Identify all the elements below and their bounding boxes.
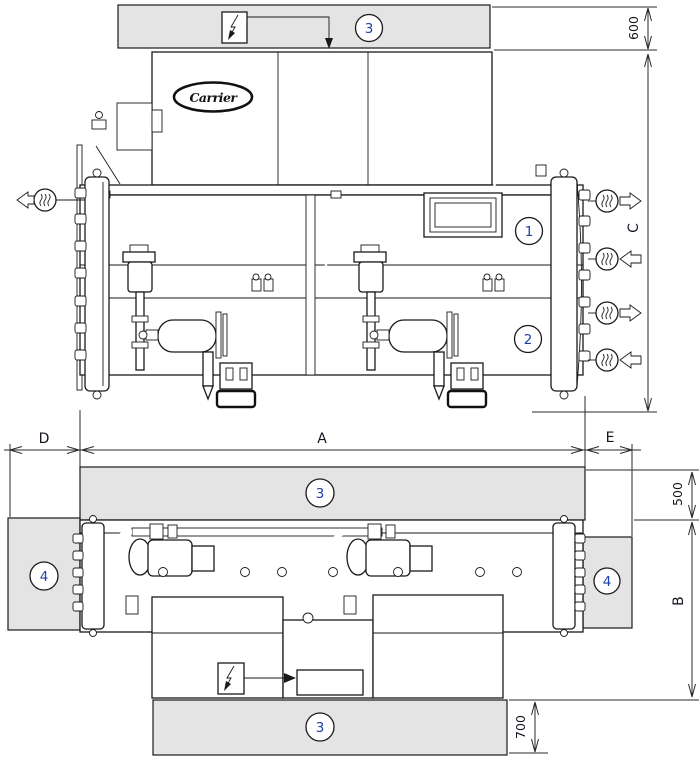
water-connection-right-1-out xyxy=(588,190,641,212)
dim-A-label: A xyxy=(317,431,327,447)
unit-top-panels xyxy=(152,52,492,185)
tube-sheet-right xyxy=(551,169,590,399)
oil-filter xyxy=(359,262,383,292)
flow-out-arrow xyxy=(17,192,34,208)
callout-1: 1 xyxy=(516,218,543,245)
water-connection-right-3-out xyxy=(588,302,641,324)
callout-2: 2 xyxy=(515,326,542,353)
electrical-connection-icon-plan xyxy=(218,663,244,694)
mid-support-column xyxy=(306,195,315,375)
dim-600: 600 xyxy=(492,7,657,50)
callout-3-label: 3 xyxy=(316,720,325,736)
compressor-motor xyxy=(148,540,192,576)
flow-out-arrow xyxy=(620,193,641,209)
water-connection-right-4-in xyxy=(588,349,641,371)
callout-3-front: 3 xyxy=(306,713,334,741)
callout-4-left: 4 xyxy=(30,562,58,590)
elevation-view: 3 Carrier xyxy=(17,5,641,407)
dim-D-label: D xyxy=(39,431,50,447)
dim-600-label: 600 xyxy=(626,16,641,40)
callout-3-top: 3 xyxy=(356,15,383,42)
mounting-foot xyxy=(448,391,486,407)
callout-1-label: 1 xyxy=(525,224,534,240)
flow-in-arrow xyxy=(620,352,641,368)
mounting-foot xyxy=(217,391,255,407)
dim-E-label: E xyxy=(606,430,615,446)
water-connection-right-2-in xyxy=(588,248,641,270)
oil-separator xyxy=(389,320,447,352)
callout-4-right: 4 xyxy=(594,568,620,594)
callout-3-label: 3 xyxy=(365,21,374,37)
callout-4-label: 4 xyxy=(40,569,49,585)
dim-B-label: B xyxy=(671,596,687,606)
callout-2-label: 2 xyxy=(524,332,533,348)
callout-3-label: 3 xyxy=(316,486,325,502)
dim-700-label: 700 xyxy=(513,715,528,739)
compressor-motor xyxy=(366,540,410,576)
oil-separator xyxy=(158,320,216,352)
clearance-zone-top xyxy=(118,5,490,48)
dim-C-label: C xyxy=(626,223,642,233)
technical-drawing: 3 Carrier xyxy=(0,0,699,763)
drawing-page: 3 Carrier xyxy=(0,0,699,763)
service-valve xyxy=(252,279,261,291)
carrier-logo-text: Carrier xyxy=(189,90,238,105)
oil-filter-knob xyxy=(130,245,148,252)
control-box-2 xyxy=(373,595,503,698)
nameplate-rectangle xyxy=(297,670,363,695)
flow-in-arrow xyxy=(620,251,641,267)
dim-700: 700 xyxy=(509,702,548,753)
callout-3-rear: 3 xyxy=(306,479,334,507)
unit-body xyxy=(80,195,583,375)
left-junction-box xyxy=(117,103,152,150)
dim-500: 500 xyxy=(586,470,699,520)
flow-out-arrow xyxy=(620,305,641,321)
control-panel-display xyxy=(424,193,502,237)
carrier-logo: Carrier xyxy=(174,83,252,112)
plan-view: 3 4 4 xyxy=(8,467,632,755)
callout-4-label: 4 xyxy=(603,574,612,590)
oil-filter xyxy=(128,262,152,292)
electrical-connection-icon xyxy=(222,12,247,43)
dim-500-label: 500 xyxy=(670,482,685,506)
